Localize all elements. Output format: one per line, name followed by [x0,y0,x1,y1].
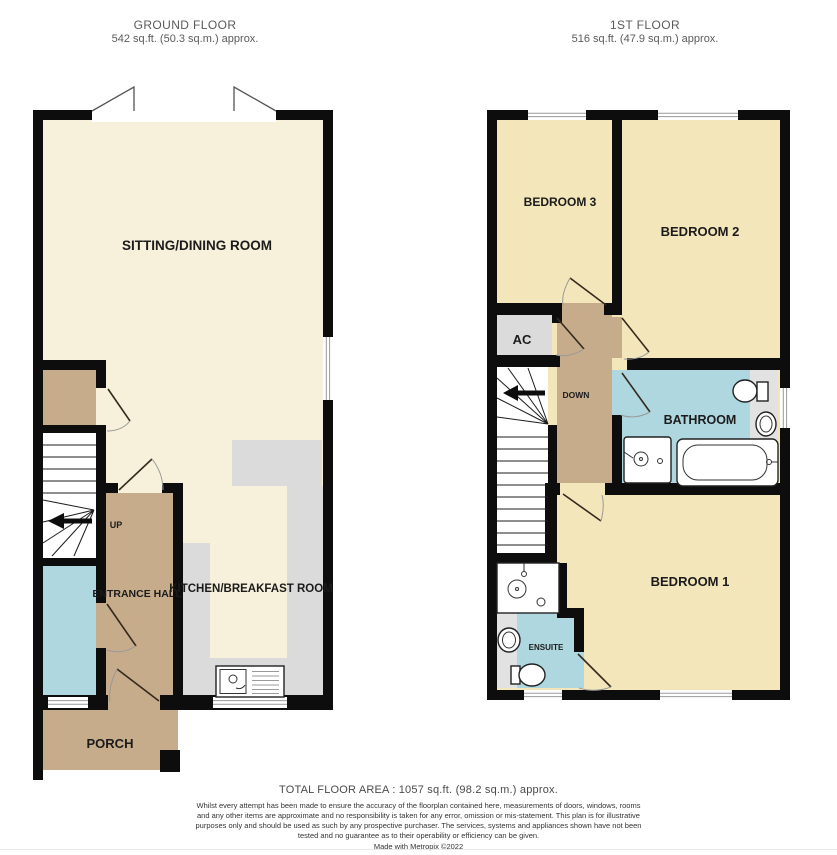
ensuite-label: ENSUITE [529,643,564,652]
bathroom-doorway [612,370,622,415]
understairs-cupboard [43,370,96,425]
ensuite-basin [498,628,520,652]
bedroom3-label: BEDROOM 3 [524,195,597,209]
gf-wall [96,483,118,493]
ff-wall-bed3-bed2 [612,120,622,305]
bathroom-label: BATHROOM [664,413,737,427]
bottom-divider [0,849,837,850]
bathroom-basin [756,412,776,436]
kitchen-sink [216,666,284,697]
ac-label: AC [513,332,532,347]
kitchen-counter-left [183,543,210,658]
kitchen-label: KITCHEN/BREAKFAST ROOM [169,583,333,595]
porch-label: PORCH [87,736,134,751]
total-floor-area: TOTAL FLOOR AREA : 1057 sq.ft. (98.2 sq.… [0,784,837,796]
porch-corner-wall [160,750,180,772]
porch [160,710,178,750]
front-doorway [108,695,160,710]
bathtub [677,439,778,486]
ff-wall [574,618,584,652]
bed3-doorway [562,303,604,315]
sitting-dining-label: SITTING/DINING ROOM [122,238,272,253]
first-floor-plan: BEDROOM 3 BEDROOM 2 BATHROOM BEDROOM 1 E… [487,110,790,700]
entrance-hall-label: ENTRANCE HALL [92,588,182,600]
patio-door-swings [92,87,276,111]
bed2-doorway [612,317,622,358]
ff-wall [487,303,562,315]
ff-wall-below-stairs [487,553,557,563]
ensuite-toilet [511,664,545,686]
ground-floor-plan: SITTING/DINING ROOM KITCHEN/BREAKFAST RO… [33,87,333,780]
ff-wall-stairs-landing [548,425,557,483]
gf-wall [33,360,105,370]
ff-wall-ac-bottom [487,355,560,367]
gf-wall [96,360,106,388]
floorplan-drawing: SITTING/DINING ROOM KITCHEN/BREAKFAST RO… [0,0,837,855]
patio-door-opening [92,110,276,122]
blue-room-doorway [96,603,106,648]
footer: TOTAL FLOOR AREA : 1057 sq.ft. (98.2 sq.… [0,784,837,851]
ff-wall [557,608,584,618]
unlabeled-blue-room [43,566,96,695]
up-label: UP [110,520,123,530]
ensuite-shower-tray [497,563,559,613]
bedroom1-label: BEDROOM 1 [651,574,730,589]
bed1-doorway [560,483,605,495]
bathroom-shower [624,437,671,483]
down-label: DOWN [563,390,590,400]
disclaimer-text: Whilst every attempt has been made to en… [193,801,645,841]
ff-wall-landing-bathroom [612,415,622,483]
ff-wall-bed2-bottom [627,358,790,370]
gf-wall [33,425,106,433]
floorplan-page: GROUND FLOOR 542 sq.ft. (50.3 sq.m.) app… [0,0,837,855]
kitchen-counter-right [287,486,323,658]
porch-left-wall [33,700,43,780]
bathroom-toilet [733,380,768,402]
gf-wall [33,558,106,566]
kitchen-counter-top [232,440,322,486]
gf-wall [96,648,106,700]
ff-wall [604,303,622,315]
ff-wall [545,495,557,555]
gf-stairs-area [43,433,96,558]
gf-wall [96,428,106,603]
bedroom2-label: BEDROOM 2 [661,224,740,239]
